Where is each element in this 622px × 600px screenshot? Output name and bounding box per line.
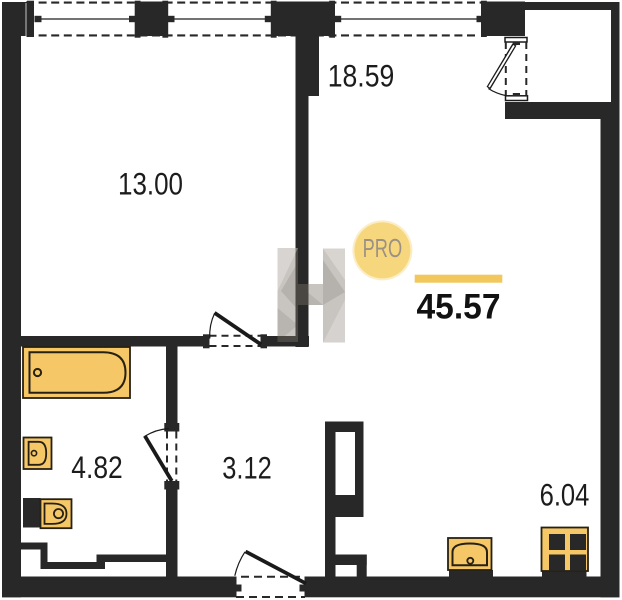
svg-text:PRO: PRO [363, 233, 403, 263]
svg-text:13.00: 13.00 [118, 166, 183, 202]
svg-text:18.59: 18.59 [328, 58, 395, 94]
svg-text:3.12: 3.12 [222, 450, 272, 486]
svg-text:6.04: 6.04 [540, 477, 590, 513]
svg-text:45.57: 45.57 [417, 288, 501, 327]
svg-text:4.82: 4.82 [71, 449, 123, 485]
